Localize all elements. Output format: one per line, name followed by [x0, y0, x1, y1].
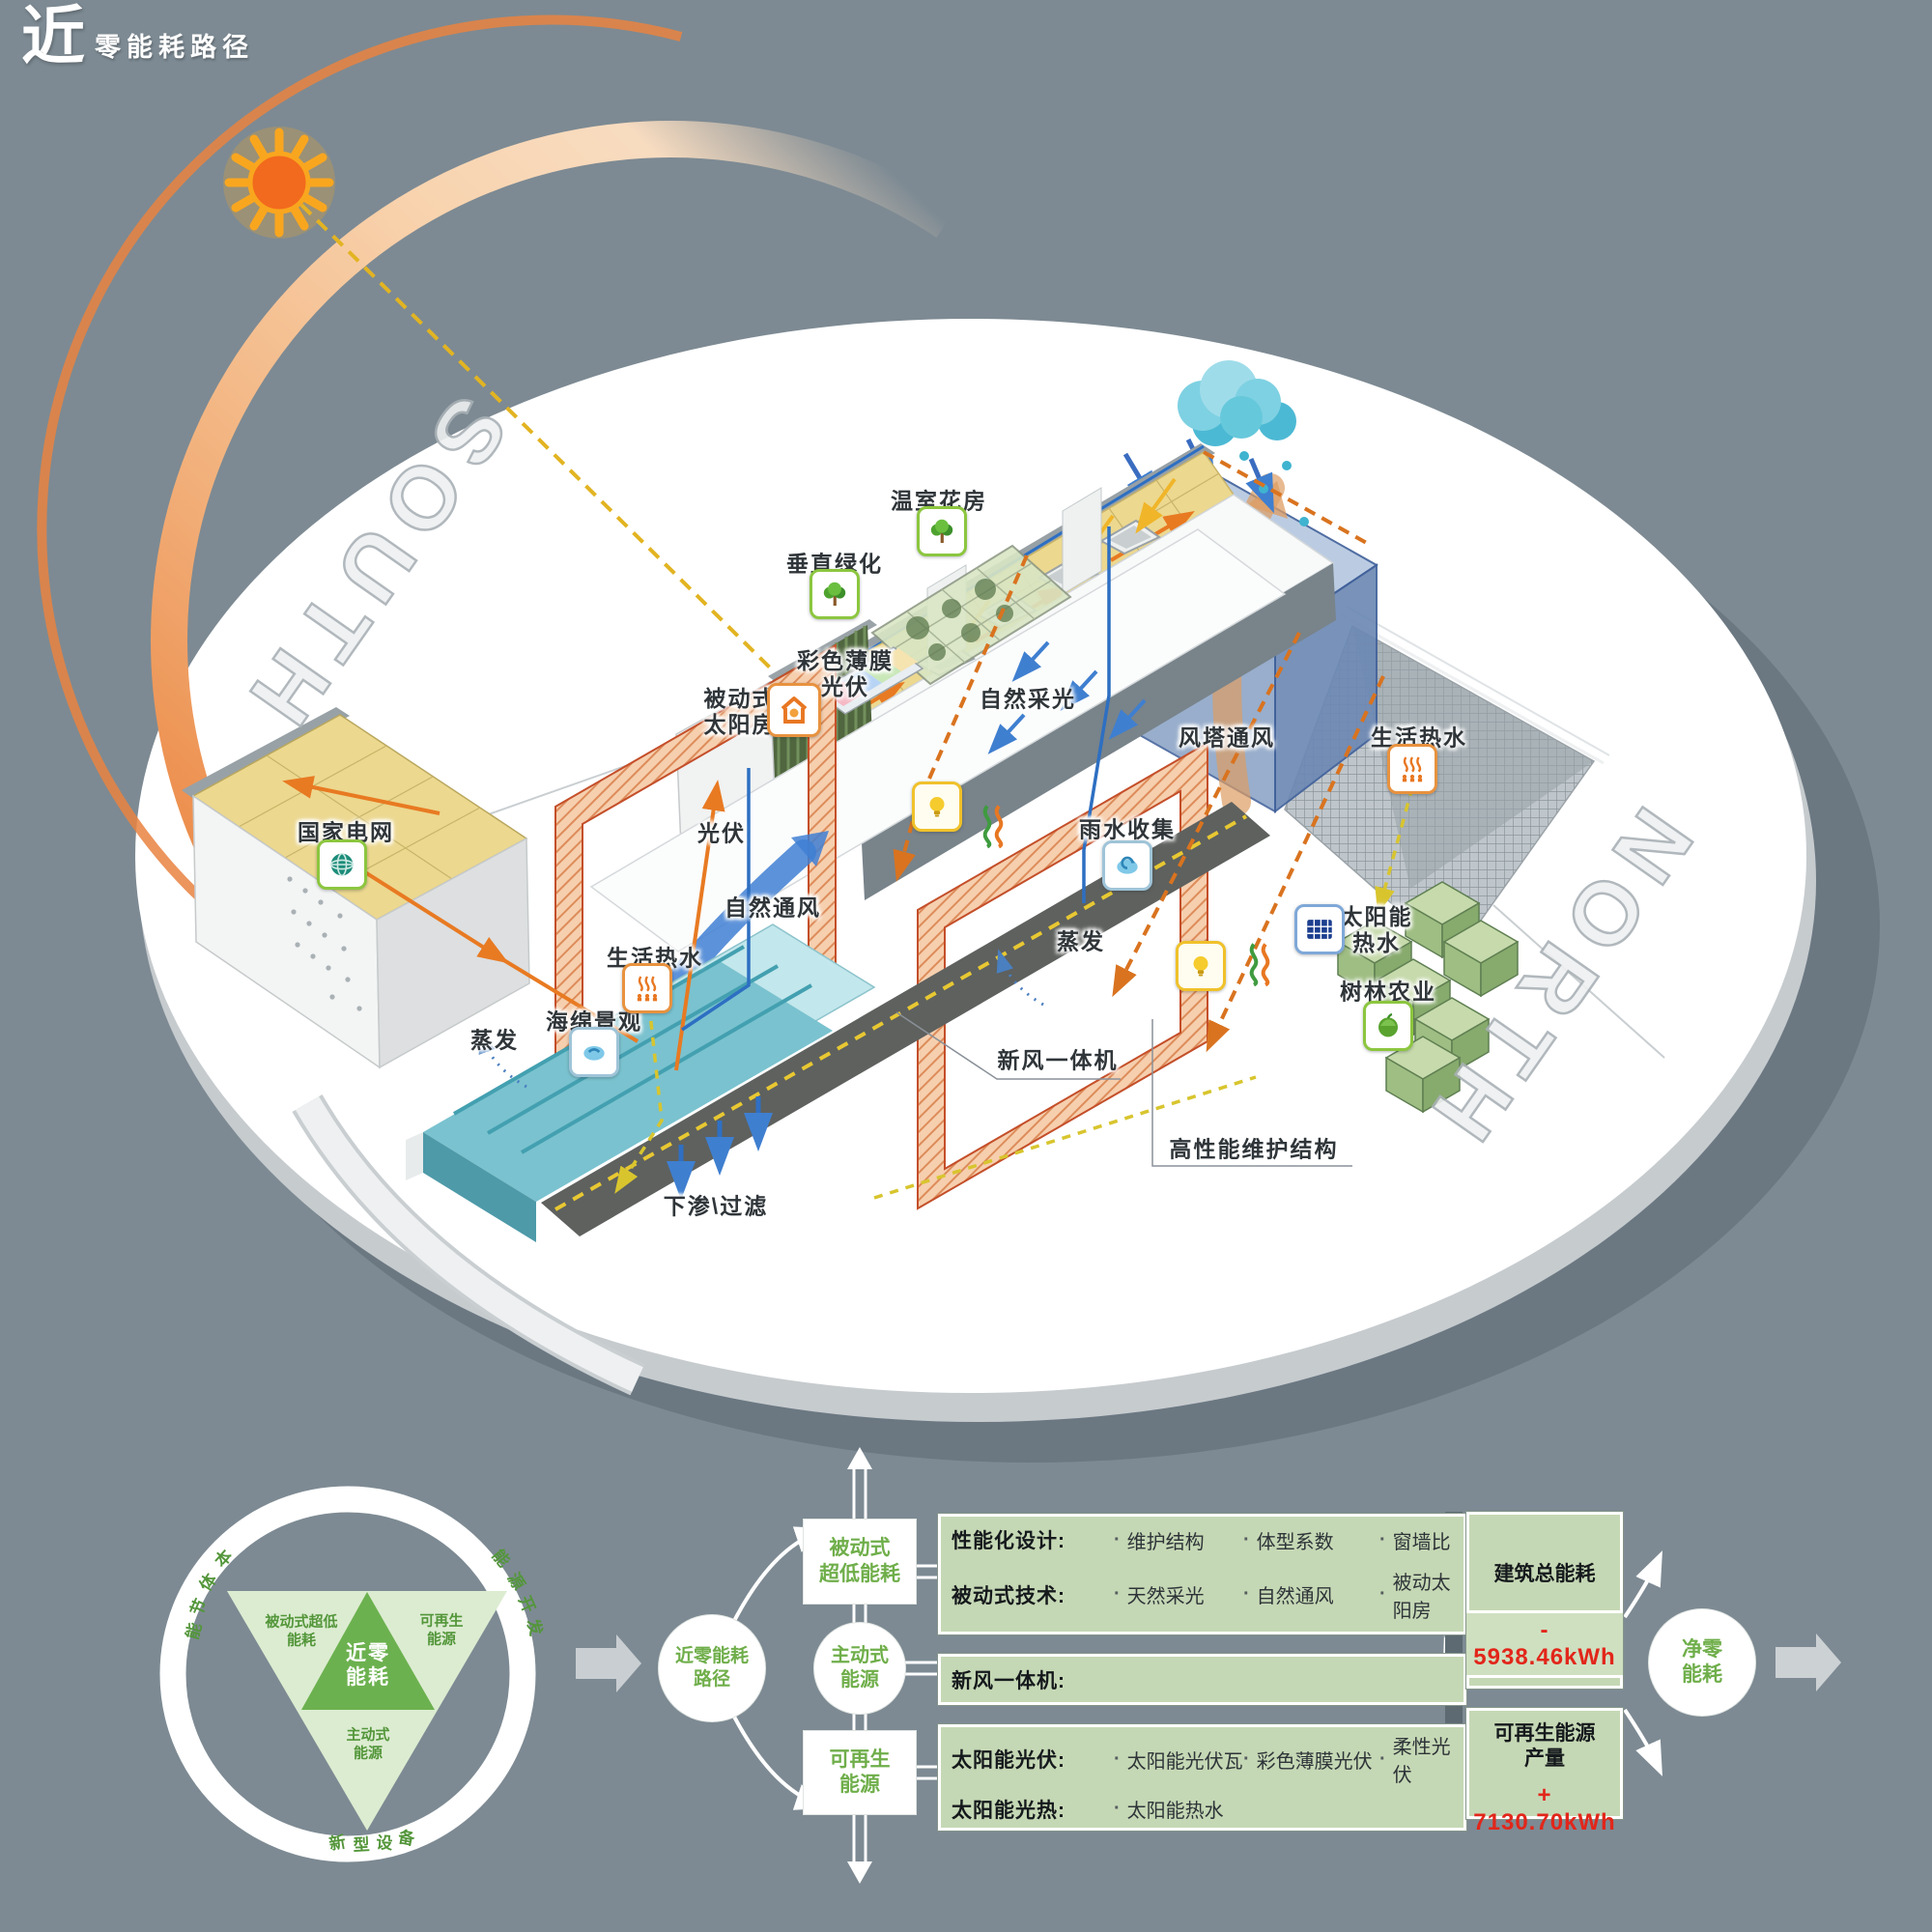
panel-item-text: 太阳能光伏瓦 [1127, 1746, 1243, 1774]
panel-item: ·体型系数 [1243, 1526, 1379, 1554]
label-rain-collect: 雨水收集 [1079, 816, 1176, 842]
page-title-text: 零能耗路径 [95, 26, 254, 64]
result-value: - 5938.46kWh [1466, 1617, 1623, 1671]
bullet: · [1114, 1583, 1121, 1605]
panel-row: 新风一体机: [938, 1665, 1466, 1694]
result-total-energy: 建筑总能耗 - 5938.46kWh [1466, 1512, 1623, 1689]
result-title: 建筑总能耗 [1466, 1562, 1623, 1587]
stage-renewable-box: 可再生 能源 [804, 1731, 916, 1814]
tree-icon [810, 569, 860, 619]
panel-item: ·太阳能光伏瓦 [1114, 1746, 1243, 1774]
vegetable-icon [1363, 1001, 1413, 1051]
panel-item: ·太阳能热水 [1114, 1795, 1243, 1823]
cycle-center-label: 近零 能耗 [346, 1641, 390, 1690]
cycle-passive-label: 被动式超低 能耗 [265, 1613, 337, 1650]
flow-arrow-1 [576, 1634, 641, 1692]
result-value-strip: - 5938.46kWh [1466, 1610, 1623, 1678]
label-solar-hot-water: 太阳能 热水 [1341, 904, 1413, 956]
label-evaporation-center: 蒸发 [1057, 928, 1105, 954]
panel-item: ·窗墙比 [1379, 1526, 1466, 1554]
panel-row: 性能化设计: ·维护结构 ·体型系数 ·窗墙比 [938, 1525, 1466, 1554]
panel-row-label: 被动式技术: [952, 1580, 1114, 1609]
label-ahu: 新风一体机 [998, 1047, 1119, 1073]
panel-item-text: 体型系数 [1257, 1526, 1334, 1554]
bullet: · [1379, 1583, 1386, 1605]
bullet: · [1379, 1748, 1386, 1771]
cycle-renewable-label: 可再生 能源 [419, 1612, 463, 1649]
bullet: · [1114, 1748, 1121, 1771]
stage-active-circle: 主动式 能源 [814, 1623, 905, 1714]
down-arrowhead [847, 1861, 872, 1884]
panel-item: ·柔性光伏 [1379, 1731, 1466, 1787]
ring-word-char: 设 [376, 1829, 394, 1854]
label-infiltration: 下渗\过滤 [664, 1193, 768, 1219]
bullet: · [1379, 1529, 1386, 1551]
hot-water-icon [622, 963, 672, 1013]
label-pv: 光伏 [697, 820, 746, 846]
bullet: · [1114, 1798, 1121, 1820]
label-envelope: 高性能维护结构 [1170, 1136, 1339, 1162]
panel-row-label: 太阳能光热: [952, 1795, 1114, 1824]
flow-arrow-final [1776, 1634, 1841, 1691]
panel-passive: 性能化设计: ·维护结构 ·体型系数 ·窗墙比 被动式技术: ·天然采光 ·自然… [938, 1514, 1466, 1634]
pipe-riser-icon [1242, 943, 1275, 992]
result-renewable-output: 可再生能源 产量 + 7130.70kWh [1466, 1708, 1623, 1819]
panel-item-text: 窗墙比 [1393, 1526, 1451, 1554]
panel-item: ·自然通风 [1243, 1580, 1379, 1608]
label-wind-tower: 风塔通风 [1179, 724, 1275, 751]
page-title-logo: 近 [21, 6, 85, 70]
panel-active: 新风一体机: [938, 1654, 1466, 1705]
cycle-active-label: 主动式 能源 [346, 1726, 389, 1763]
label-natural-ventilation: 自然通风 [724, 895, 821, 921]
panel-item-text: 太阳能热水 [1127, 1795, 1224, 1823]
bullet: · [1243, 1748, 1250, 1771]
panel-row-label: 性能化设计: [952, 1525, 1114, 1554]
label-evaporation-left: 蒸发 [470, 1027, 519, 1053]
hot-water-icon [1387, 744, 1437, 794]
panel-item-text: 维护结构 [1127, 1526, 1205, 1554]
ring-word-char: 型 [353, 1831, 370, 1856]
sun-icon [223, 127, 335, 239]
lightbulb-icon [912, 781, 962, 832]
result-title: 可再生能源 产量 [1466, 1721, 1623, 1773]
panel-row-label: 太阳能光伏: [952, 1745, 1114, 1774]
panel-item: ·维护结构 [1114, 1526, 1243, 1554]
panel-row-label: 新风一体机: [952, 1665, 1114, 1694]
passive-solar-house-icon [767, 683, 821, 737]
label-passive-solar-house: 被动式 太阳房 [704, 686, 777, 738]
sponge-water-icon [569, 1027, 619, 1077]
net-zero-circle: 净零 能耗 [1649, 1609, 1755, 1716]
bullet: · [1243, 1529, 1250, 1551]
label-daylighting: 自然采光 [980, 686, 1076, 712]
panel-row: 太阳能光伏: ·太阳能光伏瓦 ·彩色薄膜光伏 ·柔性光伏 [938, 1731, 1466, 1787]
stage-passive-box: 被动式 超低能耗 [804, 1520, 916, 1604]
lightbulb-icon [1176, 941, 1226, 991]
tree-icon [917, 506, 967, 556]
panel-item: ·彩色薄膜光伏 [1243, 1746, 1379, 1774]
bullet: · [1243, 1583, 1250, 1605]
result-value: + 7130.70kWh [1466, 1782, 1623, 1836]
page: 近 零能耗路径 SOUTH NORTH 温室花房 垂直绿化 彩色薄膜 光伏 被动… [0, 0, 1932, 1932]
panel-item-text: 自然通风 [1257, 1580, 1334, 1608]
page-title: 近 零能耗路径 [21, 6, 254, 70]
bullet: · [1114, 1529, 1121, 1551]
pipe-riser-icon [976, 805, 1009, 854]
panel-item: ·天然采光 [1114, 1580, 1243, 1608]
solar-panel-icon [1294, 904, 1345, 954]
state-grid-globe-icon [317, 839, 367, 890]
rainwater-icon [1102, 840, 1152, 891]
panel-renewable: 太阳能光伏: ·太阳能光伏瓦 ·彩色薄膜光伏 ·柔性光伏 太阳能光热: ·太阳能… [938, 1724, 1466, 1831]
panel-item-text: 彩色薄膜光伏 [1257, 1746, 1373, 1774]
path-circle: 近零能耗 路径 [659, 1615, 765, 1721]
panel-row: 被动式技术: ·天然采光 ·自然通风 ·被动太阳房 [938, 1567, 1466, 1623]
panel-item-text: 天然采光 [1127, 1580, 1205, 1608]
panel-row: 太阳能光热: ·太阳能热水 [938, 1795, 1466, 1824]
panel-item: ·被动太阳房 [1379, 1567, 1466, 1623]
panel-item-text: 被动太阳房 [1393, 1567, 1466, 1623]
panel-item-text: 柔性光伏 [1393, 1731, 1466, 1787]
